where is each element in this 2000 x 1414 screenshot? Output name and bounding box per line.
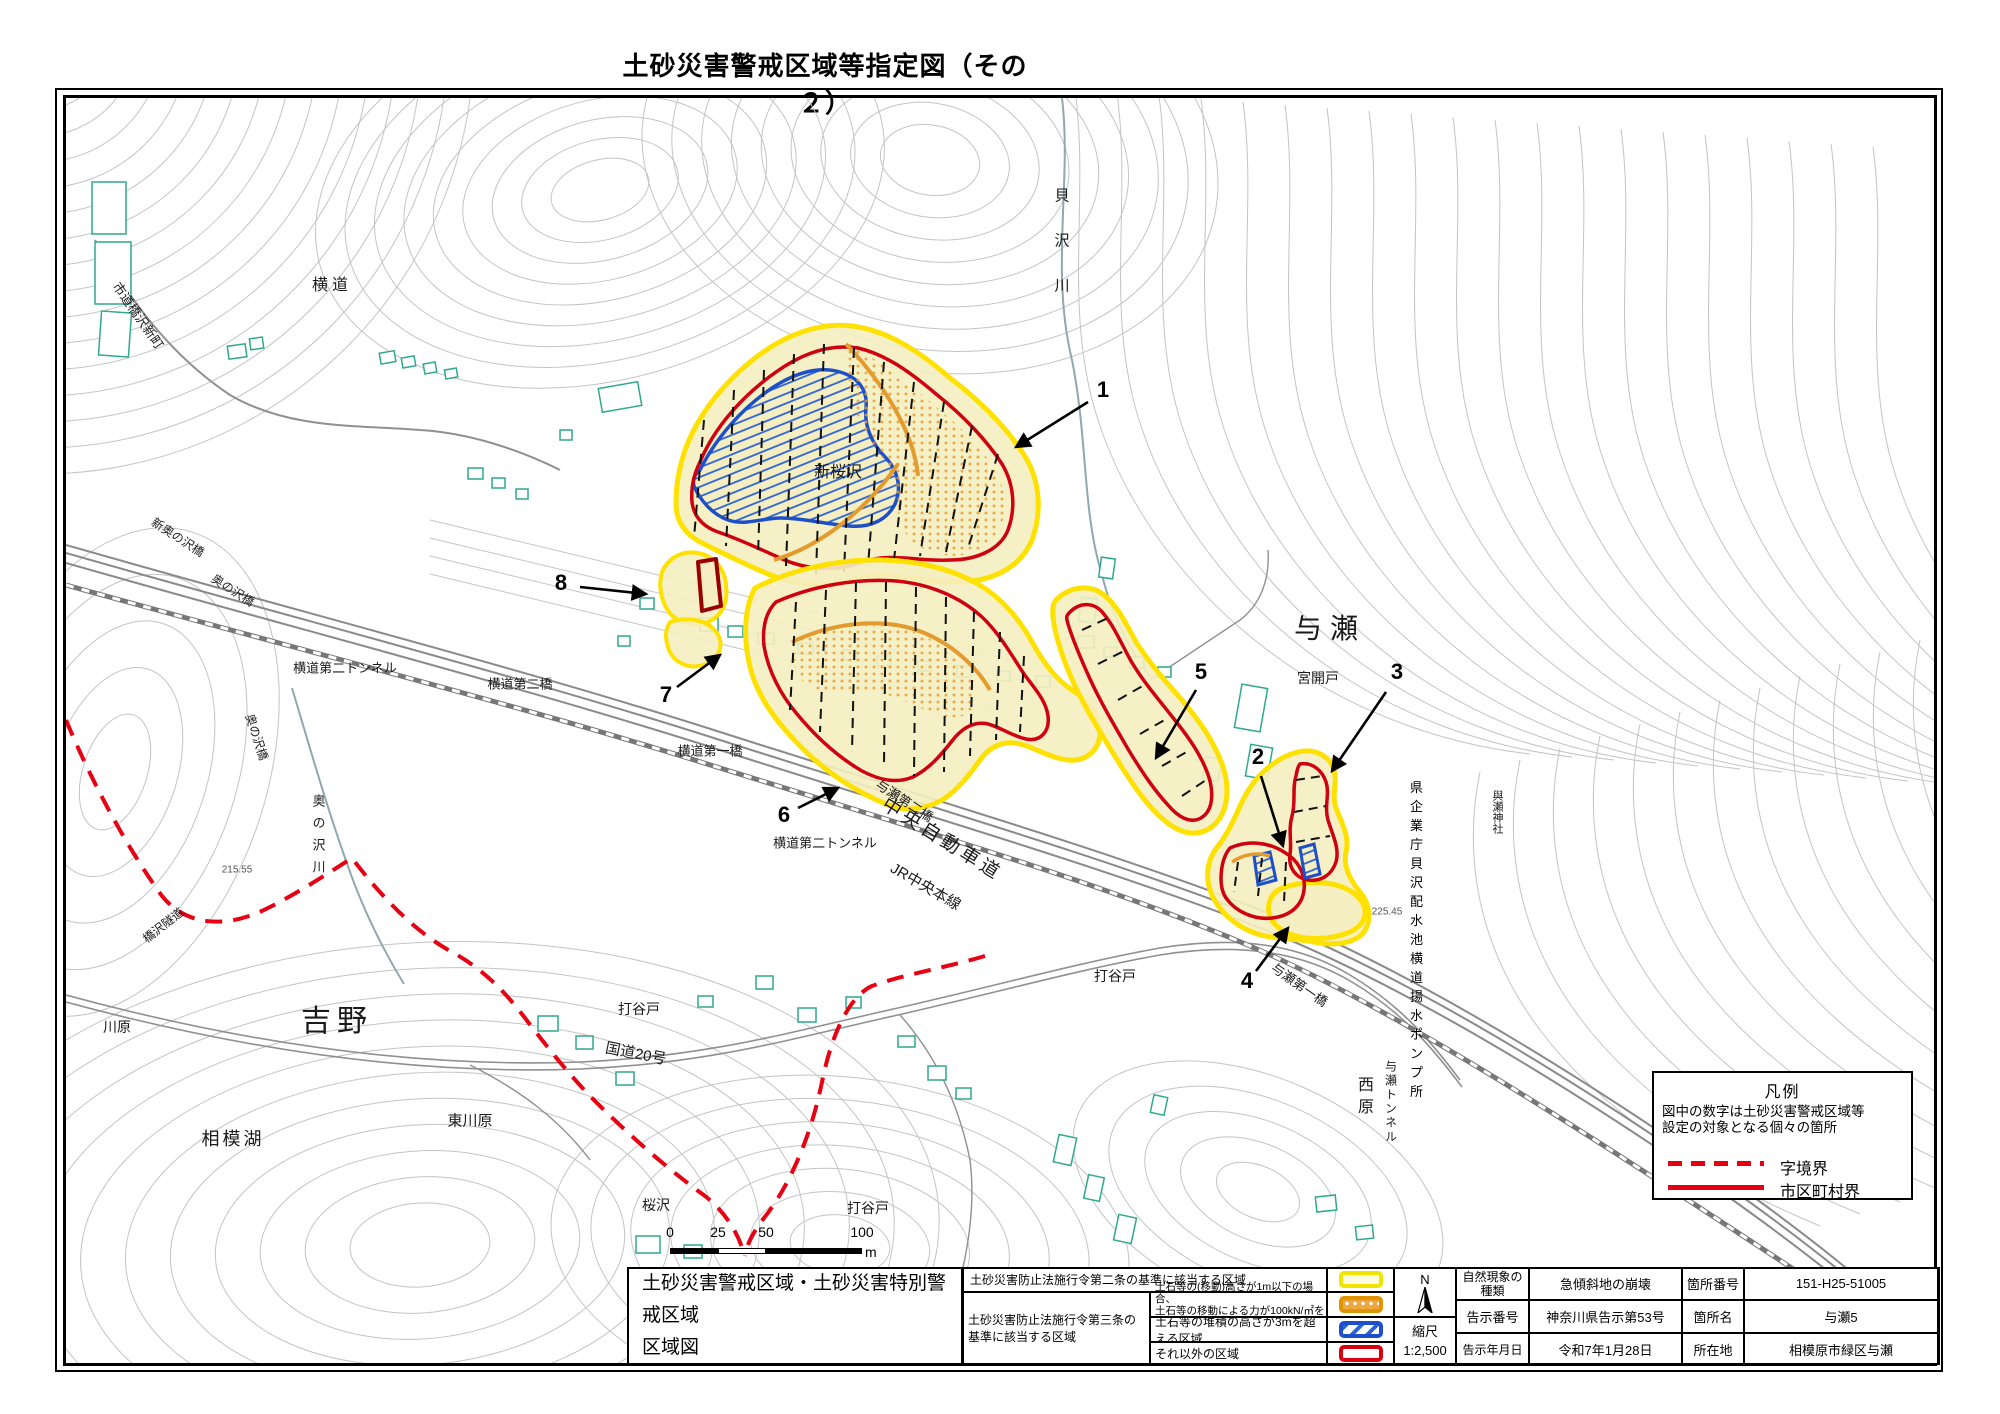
- scale-label: 縮尺: [1412, 1322, 1438, 1341]
- label-elev-225: 225.45: [1372, 907, 1403, 918]
- arrow-1: [1016, 402, 1088, 447]
- label-shin-sakurasawa: 新桜沢: [814, 458, 862, 482]
- label-yoshino: 吉野: [301, 996, 373, 1040]
- scale-tick-0: 0: [666, 1224, 674, 1240]
- marker-1: 1: [1097, 377, 1109, 403]
- label-haisuichi-line2: 横道揚水ポンプ所: [1410, 949, 1423, 1101]
- law3-label-cell: 土砂災害防止法施行令第三条の基準に該当する区域: [963, 1292, 1150, 1365]
- criteria-row3-cell: 土石等の堆積の高さが3mを超える区域: [1150, 1317, 1327, 1342]
- municipal-boundary-sample: [1668, 1185, 1764, 1190]
- label-kaizawa-gawa: 貝沢川: [1051, 188, 1072, 323]
- field-notice-date-label: 告示年月日: [1456, 1333, 1529, 1365]
- criteria-row2-line1: 土石等の(移動)高さが1m以下の場合、: [1155, 1281, 1326, 1305]
- label-yokomichi: 横道: [312, 271, 352, 295]
- criteria-row4-cell: それ以外の区域: [1150, 1342, 1327, 1365]
- haisuichi-access-road: [1150, 550, 1268, 680]
- legend-box: 凡例 図中の数字は土砂災害警戒区域等 設定の対象となる個々の箇所 字境界 市区町…: [1652, 1071, 1913, 1200]
- municipal-boundary-label: 市区町村界: [1780, 1178, 1860, 1202]
- scale-tick-100: 100: [850, 1224, 873, 1240]
- zone4-warning-yellow-lobe: [1269, 882, 1366, 938]
- route20-a: [66, 942, 1460, 1080]
- label-uchigayato-south: 打谷戸: [847, 1198, 889, 1218]
- field-notice-date-value: 令和7年1月28日: [1529, 1333, 1682, 1365]
- marker-5: 5: [1195, 659, 1207, 685]
- sheet-title-line2: 区域図: [642, 1332, 962, 1364]
- scale-bar: 0 25 50 100 m: [660, 1224, 890, 1260]
- swatch-warning-yellow: [1339, 1271, 1383, 1288]
- label-yokomichi-daini-tunnel-w: 横道第二トンネル: [293, 658, 397, 677]
- sheet-title-line1: 土砂災害警戒区域・土砂災害特別警戒区域: [642, 1268, 962, 1332]
- field-site-name-label: 箇所名: [1682, 1300, 1744, 1333]
- scale-value: 1:2,500: [1403, 1341, 1446, 1360]
- label-yokomichi-daini-tunnel-e: 横道第二トンネル: [773, 833, 877, 852]
- label-higashi-kawara: 東川原: [447, 1110, 492, 1131]
- label-sagamiko: 相模湖: [202, 1125, 265, 1151]
- label-haisuichi-line1: 県企業庁貝沢配水池: [1410, 778, 1423, 949]
- law2-swatch-cell: [1327, 1267, 1394, 1292]
- label-nishihara: 西原: [1351, 1076, 1375, 1120]
- contours-left-mid: [66, 485, 337, 1058]
- scale-tick-50: 50: [758, 1224, 774, 1240]
- label-uchigayato-mid: 打谷戸: [1094, 966, 1136, 986]
- north-label: N: [1420, 1272, 1429, 1287]
- field-phenomenon-value: 急傾斜地の崩壊: [1529, 1267, 1682, 1300]
- label-yose-tunnel: 与瀬トンネル: [1383, 1060, 1400, 1144]
- marker-6: 6: [778, 802, 790, 828]
- swatch-deposit-blue: [1339, 1321, 1383, 1338]
- label-yose-jinja: 與瀬神社: [1489, 790, 1505, 834]
- legend-note-line2: 設定の対象となる個々の箇所: [1662, 1120, 1903, 1136]
- criteria-row2-swatch-cell: [1327, 1292, 1394, 1317]
- scale-unit: m: [865, 1244, 877, 1260]
- aza-boundary-label: 字境界: [1780, 1155, 1828, 1179]
- field-site-number-label: 箇所番号: [1682, 1267, 1744, 1300]
- marker-7: 7: [660, 682, 672, 708]
- field-location-label: 所在地: [1682, 1333, 1744, 1365]
- label-haisuichi: 県企業庁貝沢配水池 横道揚水ポンプ所: [1410, 778, 1423, 1101]
- marker-4: 4: [1241, 968, 1253, 994]
- field-notice-number-label: 告示番号: [1456, 1300, 1529, 1333]
- label-yokomichi-daiichi-bashi: 横道第一橋: [677, 741, 742, 760]
- label-yokomichi-daini-bashi: 横道第二橋: [487, 674, 552, 693]
- criteria-row3-swatch-cell: [1327, 1317, 1394, 1342]
- field-notice-number-value: 神奈川県告示第53号: [1529, 1300, 1682, 1333]
- aza-boundary-sample: [1668, 1161, 1764, 1166]
- label-uchigayato-west: 打谷戸: [618, 999, 660, 1019]
- scale-segment-3: [766, 1248, 862, 1254]
- field-location-value: 相模原市緑区与瀬: [1744, 1333, 1938, 1365]
- scale-tick-25: 25: [710, 1224, 726, 1240]
- marker-3: 3: [1391, 659, 1403, 685]
- contours-top-right: [1075, 98, 1934, 811]
- label-elev-215: 215.55: [222, 865, 253, 876]
- label-kawara: 川原: [103, 1017, 131, 1037]
- scale-cell: 縮尺 1:2,500: [1394, 1317, 1456, 1365]
- hazard-zones: [660, 325, 1369, 944]
- field-site-number-value: 151-H25-51005: [1744, 1267, 1938, 1300]
- marker-2: 2: [1252, 744, 1264, 770]
- map-sheet-page: 土砂災害警戒区域等指定図（その２）: [0, 0, 2000, 1414]
- north-arrow-icon: [1417, 1287, 1433, 1313]
- zone8-special-darkred: [698, 559, 721, 611]
- aza-boundary-dashed: [66, 720, 985, 1256]
- marker-8: 8: [555, 570, 567, 596]
- label-sakurasawa: 桜沢: [642, 1195, 670, 1215]
- local-road-2: [900, 1015, 972, 1280]
- label-yose: 与瀬: [1294, 607, 1366, 647]
- legend-note-line1: 図中の数字は土砂災害警戒区域等: [1662, 1104, 1903, 1120]
- swatch-special-red: [1339, 1345, 1383, 1362]
- label-miyakaido: 宮開戸: [1297, 668, 1339, 688]
- arrow-3: [1332, 692, 1386, 771]
- compass-cell: N: [1394, 1267, 1456, 1317]
- criteria-row4-swatch-cell: [1327, 1342, 1394, 1365]
- swatch-debris-orange: [1339, 1296, 1383, 1313]
- sheet-title-cell: 土砂災害警戒区域・土砂災害特別警戒区域 区域図: [627, 1267, 963, 1365]
- label-okunosawa-gawa: 奥の沢川: [309, 794, 328, 882]
- field-phenomenon-label: 自然現象の種類: [1456, 1267, 1529, 1300]
- field-site-name-value: 与瀬5: [1744, 1300, 1938, 1333]
- legend-title: 凡例: [1654, 1078, 1911, 1102]
- scale-segment-1: [670, 1248, 718, 1254]
- scale-segment-2: [718, 1248, 766, 1254]
